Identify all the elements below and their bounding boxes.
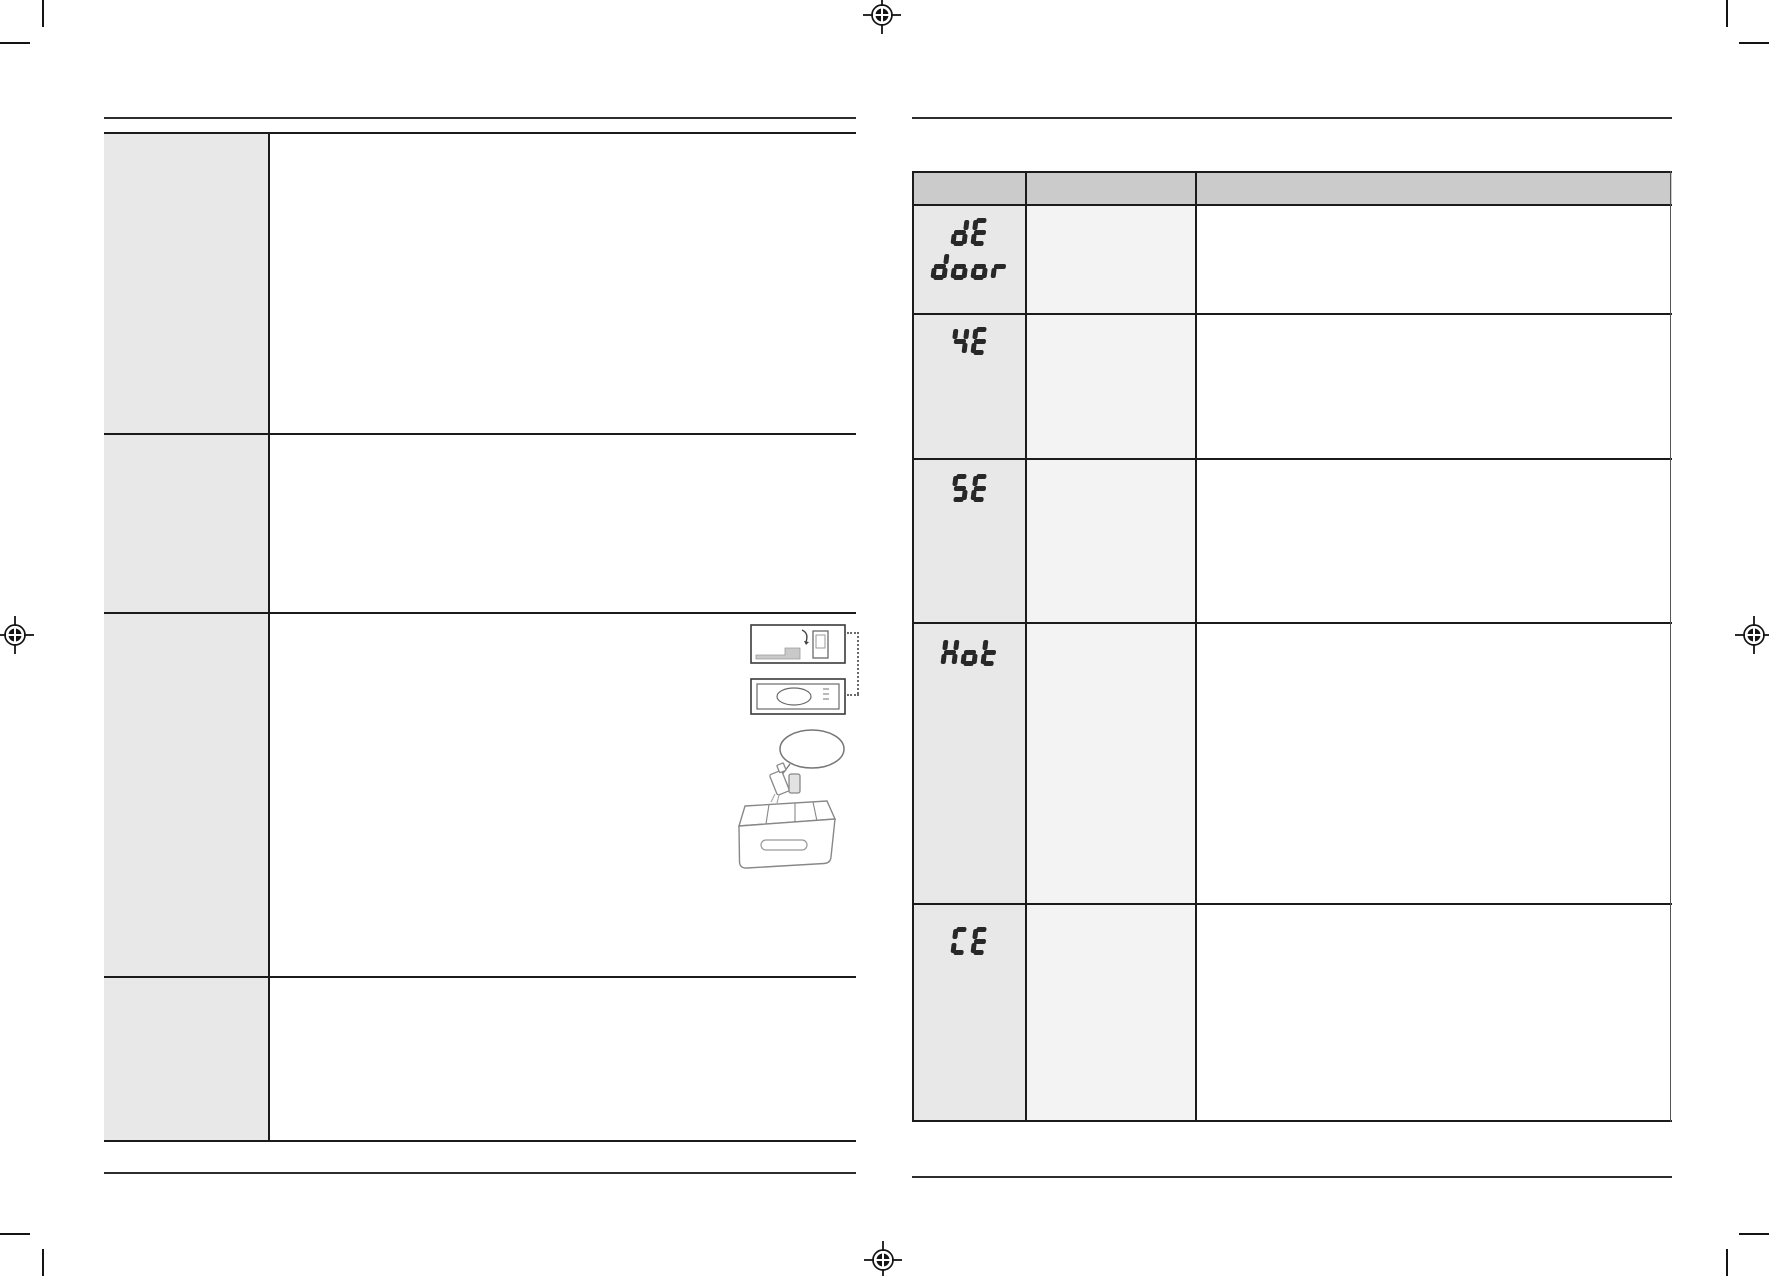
error-code-Hot: [914, 638, 1025, 672]
dotted-connector: [847, 694, 859, 696]
left-table-label-cell: [104, 976, 268, 1140]
registration-target-icon: [864, 1241, 902, 1276]
error-code-5E: [914, 474, 1025, 508]
crop-mark-bottom-left-h: [0, 1233, 30, 1235]
crop-mark-top-left-v: [42, 0, 44, 27]
crop-mark-bottom-right-v: [1726, 1249, 1728, 1276]
error-table-cell: [1027, 905, 1195, 1120]
registration-target-icon: [0, 616, 34, 654]
crop-mark-top-right-h: [1739, 42, 1769, 44]
left-table-bottom-border: [104, 1140, 856, 1142]
error-table-cell: [1197, 624, 1670, 901]
left-table-content-cell: [270, 433, 856, 612]
error-table-cell: [1197, 206, 1670, 311]
error-table-header-cell: [1197, 173, 1672, 204]
error-table-cell: [1027, 315, 1195, 456]
registration-target-icon: [1735, 616, 1769, 654]
error-code-dE-door: [914, 218, 1025, 286]
right-page-bottom-rule: [912, 1176, 1672, 1178]
left-table-label-cell: [104, 132, 268, 433]
washer-front-panel-thumbnail: [750, 678, 846, 715]
error-table-cell: [1027, 624, 1195, 901]
error-table-header-cell: [913, 173, 1025, 204]
crop-mark-bottom-right-h: [1739, 1233, 1769, 1235]
left-table-label-cell: [104, 612, 268, 976]
crop-mark-top-left-h: [0, 42, 30, 44]
crop-mark-top-right-v: [1726, 0, 1728, 27]
left-table-content-cell: [270, 132, 856, 433]
right-page-top-rule: [912, 117, 1672, 119]
error-code-CE: [914, 927, 1025, 961]
washer-install-side-thumbnail: [750, 624, 846, 664]
left-table-label-cell: [104, 433, 268, 612]
left-table-content-cell: [270, 976, 856, 1140]
error-table-cell: [1197, 905, 1670, 1120]
registration-target-icon: [863, 0, 901, 34]
error-table-right-border: [1670, 171, 1671, 1122]
left-page-top-rule: [104, 117, 856, 119]
error-table-cell: [1197, 315, 1670, 456]
detergent-drawer-pouring-illustration: [733, 722, 847, 872]
manual-page-spread: [0, 0, 1769, 1276]
left-page-bottom-rule: [104, 1172, 856, 1174]
error-code-4E: [914, 327, 1025, 361]
error-table-cell: [1197, 460, 1670, 620]
error-table-cell: [1027, 206, 1195, 311]
dotted-connector: [857, 632, 859, 694]
error-table-header-cell: [1027, 173, 1195, 204]
crop-mark-bottom-left-v: [42, 1249, 44, 1276]
error-table-cell: [1027, 460, 1195, 620]
